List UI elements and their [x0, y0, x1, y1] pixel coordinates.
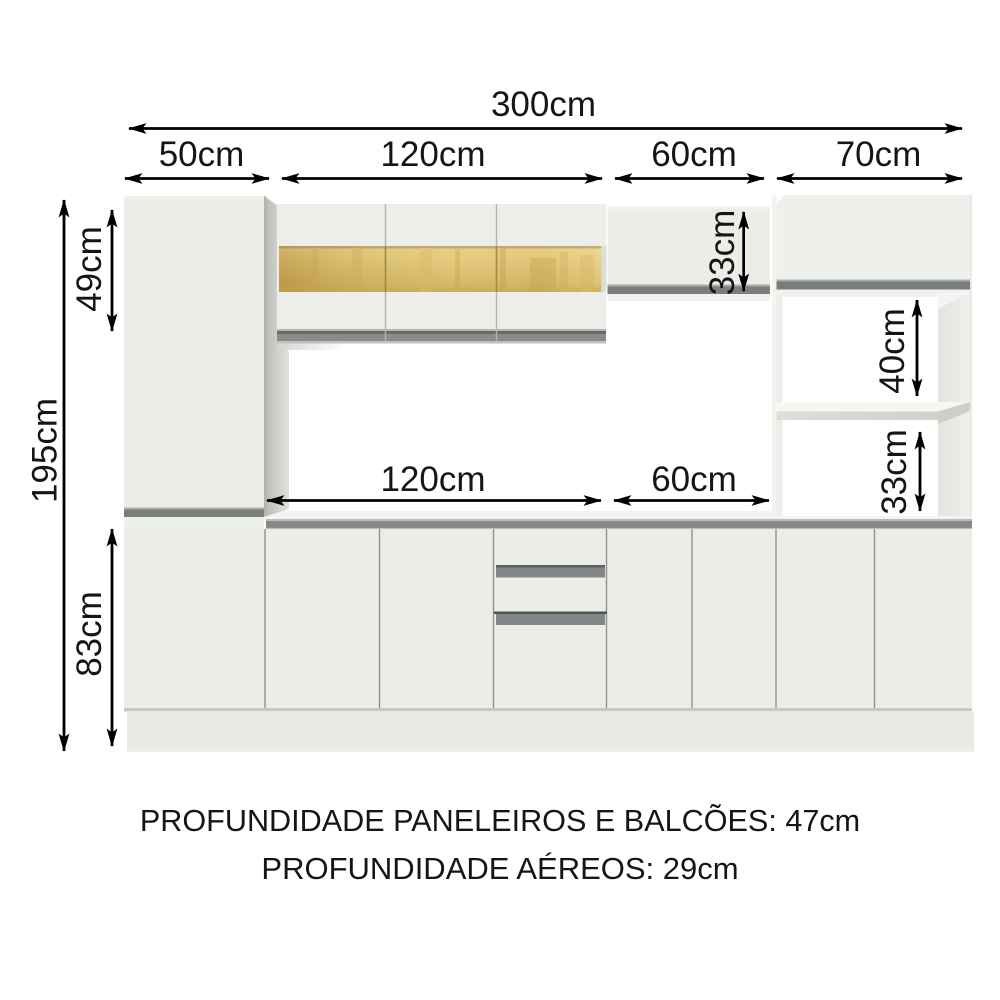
- svg-text:PROFUNDIDADE PANELEIROS E BALC: PROFUNDIDADE PANELEIROS E BALCÕES: 47cm: [140, 803, 860, 838]
- svg-text:120cm: 120cm: [380, 460, 485, 499]
- svg-text:300cm: 300cm: [491, 85, 596, 124]
- svg-text:120cm: 120cm: [380, 135, 485, 174]
- svg-text:40cm: 40cm: [873, 308, 912, 394]
- svg-text:195cm: 195cm: [26, 398, 65, 503]
- svg-text:60cm: 60cm: [651, 135, 737, 174]
- svg-text:70cm: 70cm: [836, 135, 922, 174]
- svg-text:33cm: 33cm: [703, 210, 742, 296]
- svg-text:50cm: 50cm: [159, 135, 245, 174]
- svg-text:33cm: 33cm: [875, 429, 914, 515]
- svg-text:49cm: 49cm: [70, 226, 109, 312]
- svg-text:83cm: 83cm: [70, 591, 109, 677]
- svg-text:60cm: 60cm: [651, 460, 737, 499]
- svg-text:PROFUNDIDADE AÉREOS: 29cm: PROFUNDIDADE AÉREOS: 29cm: [261, 851, 738, 886]
